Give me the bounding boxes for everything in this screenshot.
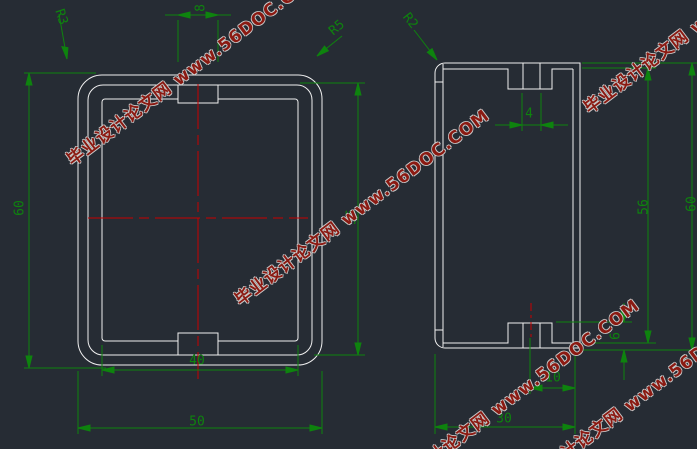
arrow bbox=[621, 350, 627, 362]
arrow bbox=[178, 12, 190, 18]
arrow bbox=[689, 63, 695, 75]
arrow bbox=[206, 12, 218, 18]
inner-opening[interactable] bbox=[102, 99, 298, 341]
dim-label-inner-width[interactable]: 40 bbox=[189, 355, 205, 368]
arrow bbox=[541, 122, 553, 128]
arrow bbox=[355, 83, 361, 95]
arrow bbox=[355, 343, 361, 355]
arrow bbox=[563, 385, 575, 391]
dim-label-front-height[interactable]: 60 bbox=[14, 200, 27, 216]
arrow bbox=[62, 47, 68, 59]
dim-label-side-inner-height[interactable]: 56 bbox=[638, 199, 651, 215]
arrow bbox=[510, 122, 522, 128]
arrow bbox=[286, 367, 298, 373]
dim-label-outer-width[interactable]: 50 bbox=[189, 416, 205, 429]
arrow bbox=[78, 425, 90, 431]
outer-outline[interactable] bbox=[435, 63, 580, 348]
arrow bbox=[310, 425, 322, 431]
dim-label-side-outer-height[interactable]: 60 bbox=[686, 196, 697, 212]
arrow bbox=[26, 356, 32, 368]
side-view[interactable] bbox=[435, 63, 580, 348]
arrow bbox=[645, 331, 651, 343]
cad-canvas[interactable]: 8 60 40 50 56 R3 R5 R2 4 56 60 6 10 30 毕… bbox=[0, 0, 697, 449]
arrow bbox=[317, 46, 328, 56]
inner-bottom-line bbox=[443, 323, 573, 343]
inner-top-line bbox=[443, 69, 573, 89]
arrow bbox=[427, 49, 437, 60]
dim-label-top-notch-width[interactable]: 8 bbox=[195, 4, 208, 12]
dim-label-slot-width[interactable]: 4 bbox=[525, 108, 533, 121]
arrow bbox=[26, 73, 32, 85]
